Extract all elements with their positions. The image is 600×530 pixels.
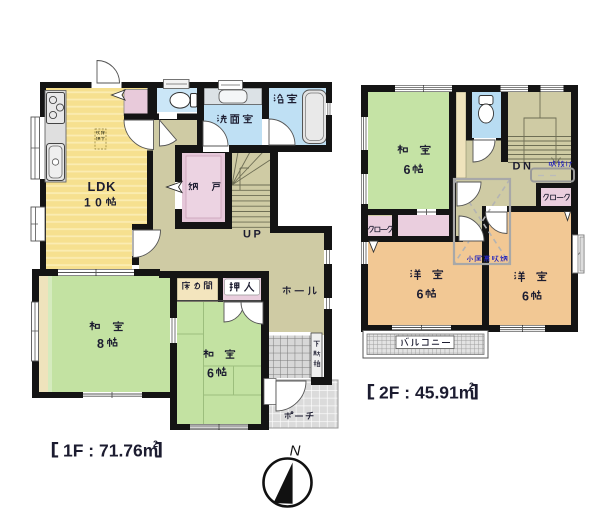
svg-text:UP: UP xyxy=(243,229,263,241)
svg-text:6: 6 xyxy=(207,367,214,381)
svg-text:8: 8 xyxy=(97,337,104,351)
svg-text:LDK: LDK xyxy=(88,179,117,194)
svg-text:1F : 71.76m: 1F : 71.76m xyxy=(63,441,158,461)
svg-text:N: N xyxy=(290,443,301,460)
svg-text:6: 6 xyxy=(404,163,411,177)
svg-text:6: 6 xyxy=(522,290,529,304)
svg-text:DN: DN xyxy=(513,161,534,173)
svg-text:10: 10 xyxy=(84,196,106,210)
svg-text:6: 6 xyxy=(417,288,424,302)
svg-text:2F : 45.91m: 2F : 45.91m xyxy=(379,383,474,403)
